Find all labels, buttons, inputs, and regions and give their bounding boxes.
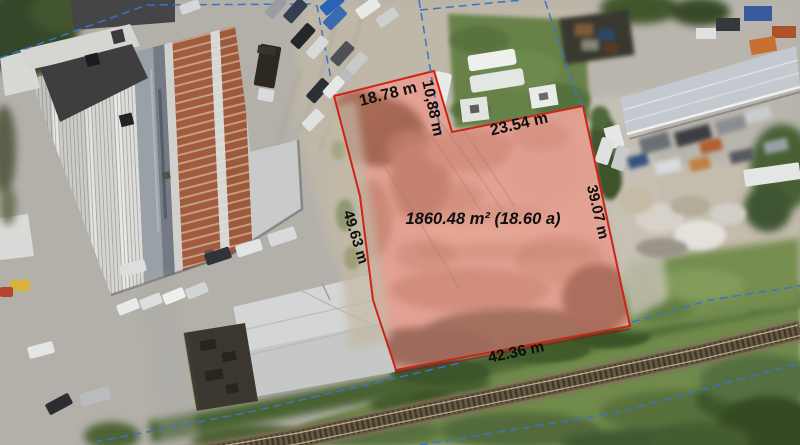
svg-text:1860.48 m² (18.60 a): 1860.48 m² (18.60 a) (405, 210, 561, 228)
